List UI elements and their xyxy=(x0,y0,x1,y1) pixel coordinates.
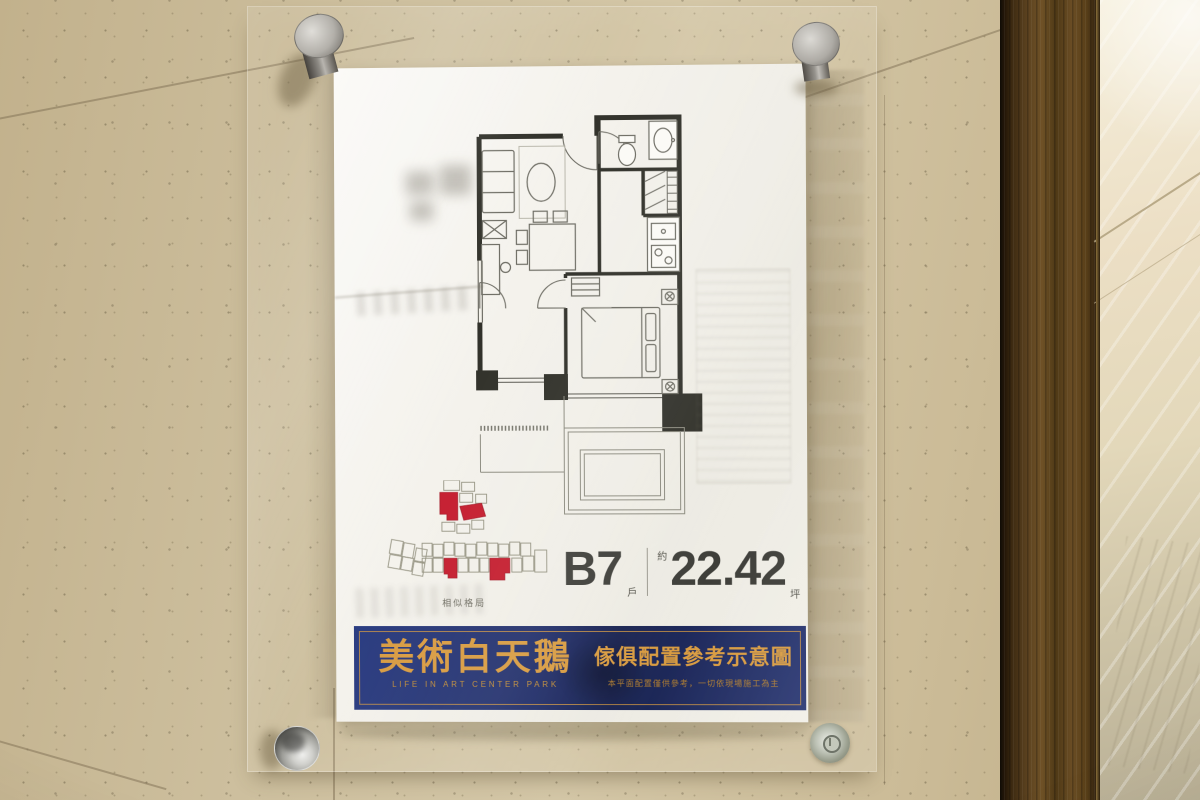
acrylic-cover xyxy=(247,6,877,772)
pin-disc xyxy=(274,726,320,771)
bright-side-panel xyxy=(1100,0,1200,800)
wood-door-frame xyxy=(1000,0,1100,800)
standoff-pin-top-right xyxy=(790,22,846,94)
wood-frame-edge xyxy=(1096,0,1100,800)
panel-seam xyxy=(1094,221,1200,304)
standoff-pin-bottom-right xyxy=(810,723,856,769)
standoff-pin-top-left xyxy=(288,14,352,100)
pin-screw xyxy=(823,735,841,753)
panel-reflection xyxy=(1102,536,1200,774)
light-glare xyxy=(1100,0,1200,180)
standoff-pin-bottom-left xyxy=(272,726,332,774)
pin-shadow xyxy=(794,80,838,96)
photo-of-floorplan-sign: 相似格局 B7 戶 約 22.42 坪 美術白天鵝 LIFE IN ART CE… xyxy=(0,0,1200,800)
pin-cap xyxy=(789,18,844,70)
wall-seam xyxy=(884,95,885,785)
